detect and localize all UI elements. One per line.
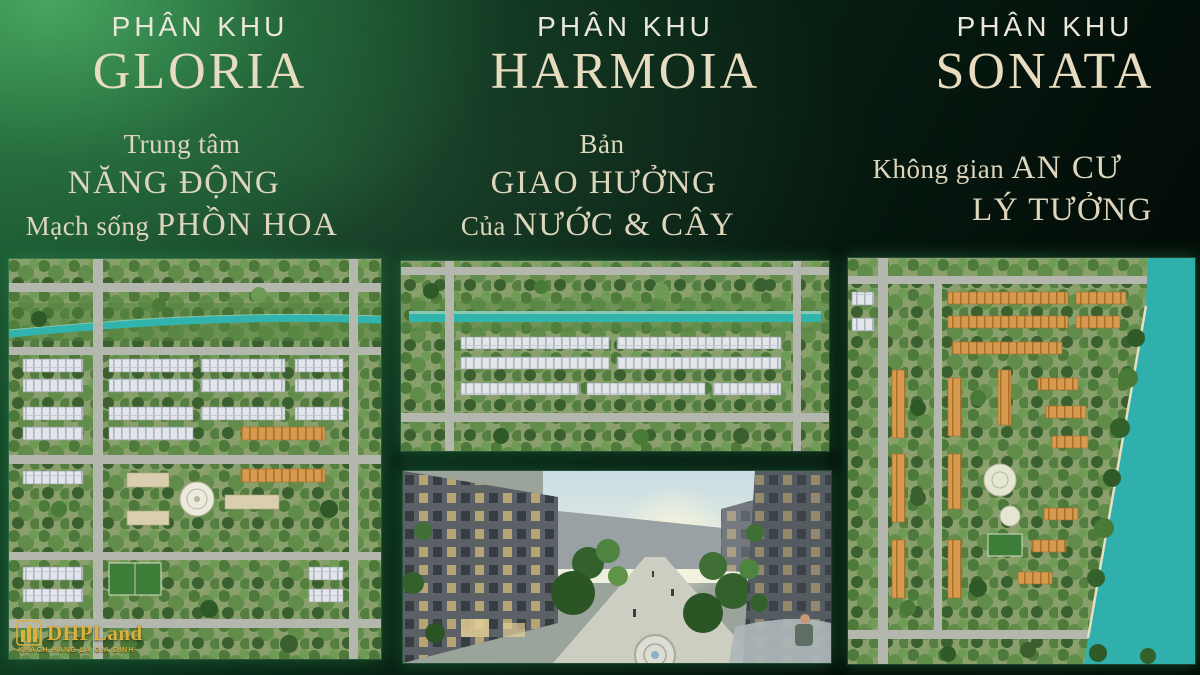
tagline-lead-text: Mạch sống: [26, 211, 157, 241]
tagline-row: Trung tâm: [12, 128, 352, 161]
park-band: [401, 301, 829, 331]
tagline-row: NĂNG ĐỘNG: [4, 163, 344, 203]
tagline-row: LÝ TƯỞNG: [895, 190, 1200, 230]
sports-field: [109, 563, 161, 595]
gloria-masterplan-image: [8, 258, 382, 660]
tagline-sonata: Không gian AN CƯLÝ TƯỞNG: [855, 146, 1190, 233]
water-stream: [409, 314, 821, 322]
dhp-land-logo: DHPLand KHÁCH HÀNG LÀ GIA ĐÌNH: [16, 620, 186, 654]
section-header-harmoia: PHÂN KHU HARMOIA: [468, 12, 783, 99]
tagline-caps-text: PHỒN HOA: [157, 207, 339, 243]
tagline-caps-text: LÝ TƯỞNG: [972, 192, 1153, 228]
tagline-lead-text: Bản: [580, 129, 625, 159]
section-name: GLORIA: [40, 45, 360, 100]
section-label: PHÂN KHU: [468, 12, 783, 43]
park-band: [9, 303, 381, 341]
tagline-caps-text: AN CƯ: [1011, 150, 1122, 186]
person-on-balcony: [800, 614, 810, 624]
tagline-row: Không gian AN CƯ: [830, 148, 1165, 188]
dhp-land-building-icon: [16, 620, 42, 646]
tagline-row: Bản: [417, 128, 787, 161]
section-name: SONATA: [885, 45, 1200, 100]
tagline-harmoia: BảnGIAO HƯỞNGCủa NƯỚC & CÂY: [435, 126, 805, 247]
tagline-gloria: Trung tâmNĂNG ĐỘNGMạch sống PHỒN HOA: [12, 126, 352, 247]
tagline-row: GIAO HƯỞNG: [419, 163, 789, 203]
townhouse-rows: [461, 337, 781, 395]
tagline-caps-text: GIAO HƯỞNG: [491, 165, 718, 201]
tagline-row: Của NƯỚC & CÂY: [413, 205, 783, 245]
dhp-land-slogan: KHÁCH HÀNG LÀ GIA ĐÌNH: [18, 647, 186, 654]
tagline-caps-text: NĂNG ĐỘNG: [68, 165, 280, 201]
sonata-masterplan-image: [847, 257, 1196, 665]
harmoia-street-view-image: [402, 470, 832, 664]
section-label: PHÂN KHU: [40, 12, 360, 43]
harmoia-masterplan-image: [400, 260, 830, 452]
section-name: HARMOIA: [468, 45, 783, 100]
slide-background: PHÂN KHU GLORIA PHÂN KHU HARMOIA PHÂN KH…: [0, 0, 1200, 675]
tagline-lead-text: Trung tâm: [124, 129, 241, 159]
section-label: PHÂN KHU: [885, 12, 1200, 43]
tagline-lead-text: Của: [461, 211, 513, 241]
tagline-lead-text: Không gian: [872, 154, 1011, 184]
section-header-sonata: PHÂN KHU SONATA: [885, 12, 1200, 99]
section-header-gloria: PHÂN KHU GLORIA: [40, 12, 360, 99]
tagline-row: Mạch sống PHỒN HOA: [12, 205, 352, 245]
dhp-land-brand-text: DHPLand: [47, 621, 143, 646]
tagline-caps-text: NƯỚC & CÂY: [513, 207, 735, 243]
